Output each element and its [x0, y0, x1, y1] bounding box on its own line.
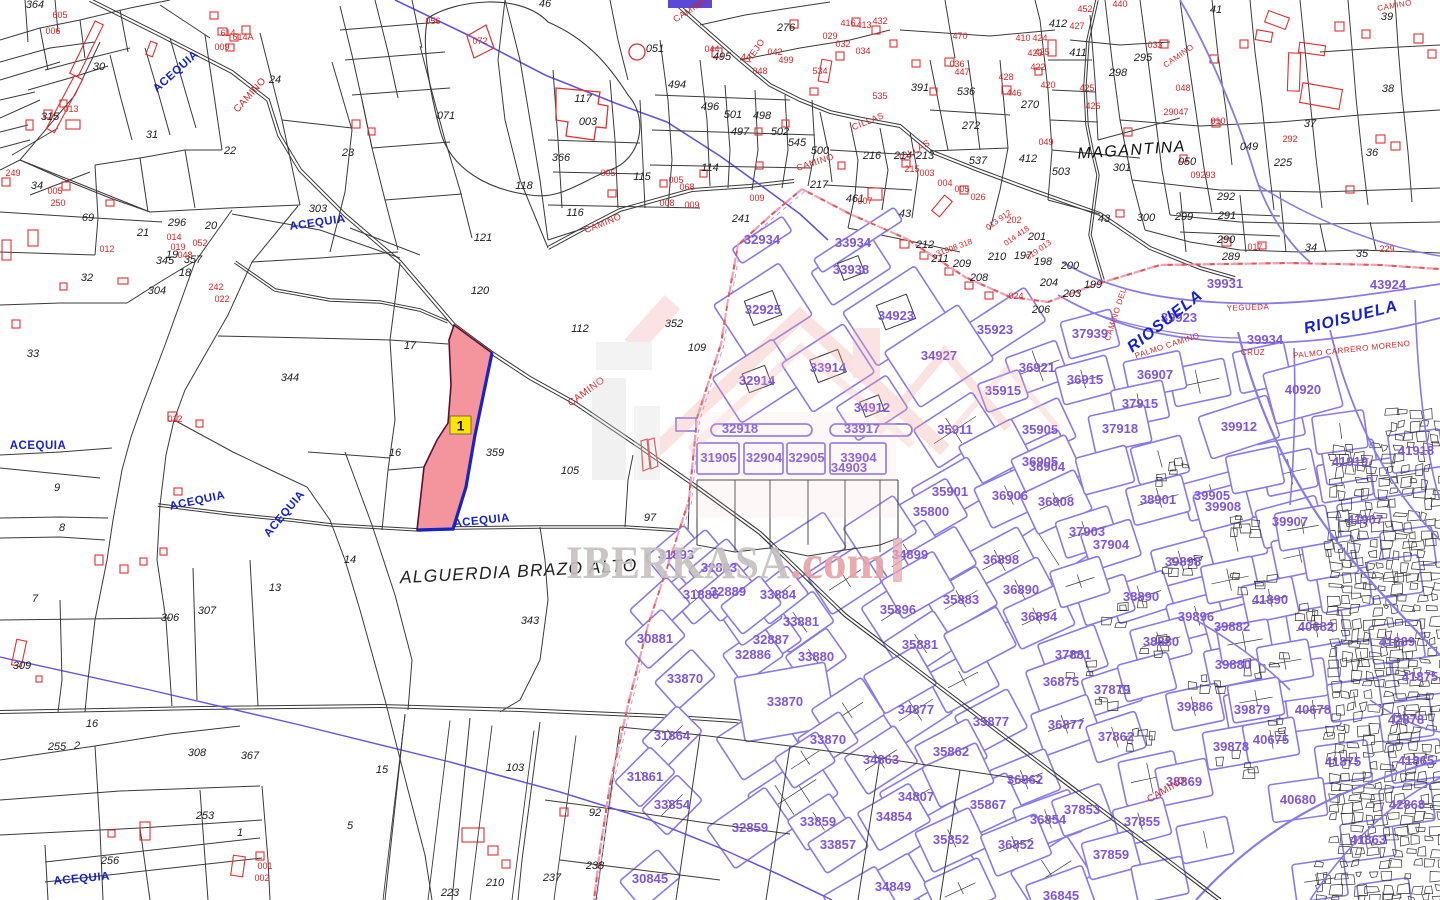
svg-text:315: 315 [41, 111, 60, 123]
svg-text:276: 276 [776, 22, 796, 34]
svg-text:37853: 37853 [1064, 802, 1100, 817]
svg-text:012: 012 [99, 244, 114, 254]
svg-text:432: 432 [872, 16, 887, 26]
svg-text:37859: 37859 [1093, 847, 1129, 862]
svg-text:38901: 38901 [1140, 492, 1176, 507]
svg-text:241: 241 [731, 213, 750, 225]
svg-text:296: 296 [167, 217, 187, 229]
svg-text:056: 056 [425, 16, 440, 26]
svg-text:39908: 39908 [1205, 499, 1241, 514]
svg-text:024: 024 [1008, 291, 1023, 301]
svg-text:014: 014 [166, 232, 181, 242]
svg-text:33857: 33857 [820, 837, 856, 852]
svg-text:09293: 09293 [1190, 170, 1215, 180]
svg-text:17: 17 [404, 340, 417, 352]
svg-text:35862: 35862 [933, 744, 969, 759]
svg-text:200: 200 [1060, 260, 1080, 272]
svg-text:203: 203 [1062, 288, 1082, 300]
svg-text:494: 494 [668, 79, 686, 91]
svg-text:18: 18 [179, 267, 192, 279]
svg-text:497: 497 [731, 126, 750, 138]
svg-text:35923: 35923 [977, 322, 1013, 337]
svg-text:39: 39 [1381, 11, 1393, 23]
svg-text:37881: 37881 [1055, 647, 1091, 662]
svg-text:422: 422 [1030, 62, 1045, 72]
svg-text:39896: 39896 [1178, 609, 1214, 624]
svg-text:502: 502 [771, 126, 789, 138]
svg-text:33: 33 [27, 348, 40, 360]
svg-text:32887: 32887 [753, 632, 789, 647]
svg-text:411: 411 [1069, 47, 1087, 59]
svg-text:39882: 39882 [1214, 619, 1250, 634]
svg-text:295: 295 [1133, 52, 1153, 64]
svg-text:048: 048 [752, 66, 767, 76]
svg-text:13: 13 [269, 582, 282, 594]
svg-text:24: 24 [268, 74, 281, 86]
svg-text:036: 036 [949, 59, 964, 69]
svg-text:42868: 42868 [1389, 797, 1425, 812]
svg-text:253: 253 [195, 810, 215, 822]
svg-text:002: 002 [254, 873, 269, 883]
svg-text:35877: 35877 [973, 714, 1009, 729]
svg-text:41863: 41863 [1350, 832, 1386, 847]
svg-text:501: 501 [724, 109, 742, 121]
svg-text:017: 017 [1247, 242, 1262, 252]
svg-text:299: 299 [1174, 211, 1193, 223]
svg-text:15: 15 [376, 764, 389, 776]
svg-text:605: 605 [52, 10, 67, 20]
svg-text:366: 366 [552, 152, 571, 164]
svg-text:198: 198 [1034, 256, 1053, 268]
svg-text:39931: 39931 [1207, 276, 1243, 291]
svg-text:2: 2 [73, 740, 80, 752]
svg-text:20: 20 [204, 220, 218, 232]
svg-text:29047: 29047 [1163, 107, 1188, 117]
svg-text:41875: 41875 [1402, 669, 1438, 684]
svg-text:225: 225 [1273, 157, 1293, 169]
svg-text:052: 052 [192, 238, 207, 248]
svg-text:026: 026 [970, 192, 985, 202]
svg-text:116: 116 [566, 207, 584, 219]
svg-text:256: 256 [100, 855, 120, 867]
svg-text:35867: 35867 [970, 797, 1006, 812]
svg-text:14: 14 [344, 554, 356, 566]
svg-text:343: 343 [521, 615, 540, 627]
svg-text:303: 303 [309, 203, 328, 215]
svg-text:291: 291 [1217, 210, 1236, 222]
svg-text:39880: 39880 [1215, 657, 1251, 672]
svg-text:536: 536 [957, 86, 976, 98]
svg-text:40678: 40678 [1295, 702, 1331, 717]
svg-text:1: 1 [237, 827, 243, 839]
svg-text:35881: 35881 [902, 637, 938, 652]
svg-text:051: 051 [646, 43, 664, 55]
svg-text:35901: 35901 [932, 484, 968, 499]
svg-text:050: 050 [1178, 156, 1197, 168]
svg-text:16: 16 [389, 447, 402, 459]
svg-text:103: 103 [506, 762, 525, 774]
svg-text:33938: 33938 [833, 262, 869, 277]
svg-text:32859: 32859 [732, 820, 768, 835]
svg-text:114: 114 [701, 162, 719, 174]
svg-text:34923: 34923 [878, 308, 914, 323]
svg-text:CRUZ: CRUZ [1241, 348, 1265, 357]
svg-text:36898: 36898 [983, 552, 1019, 567]
svg-text:072: 072 [472, 36, 487, 46]
svg-text:34849: 34849 [875, 879, 911, 894]
svg-text:34877: 34877 [898, 702, 934, 717]
svg-text:36: 36 [1366, 147, 1379, 159]
svg-text:109: 109 [688, 342, 706, 354]
svg-text:41875: 41875 [1325, 754, 1361, 769]
svg-text:32: 32 [81, 272, 93, 284]
svg-text:270: 270 [1020, 99, 1040, 111]
svg-text:36877: 36877 [1048, 717, 1084, 732]
svg-text:003: 003 [579, 116, 598, 128]
svg-text:33854: 33854 [654, 797, 691, 812]
svg-text:426: 426 [1085, 101, 1100, 111]
svg-text:416: 416 [840, 18, 855, 28]
svg-text:424: 424 [1032, 33, 1047, 43]
svg-text:210: 210 [485, 877, 505, 889]
svg-text:37915: 37915 [1122, 396, 1158, 411]
svg-text:37879: 37879 [1094, 682, 1130, 697]
svg-text:022: 022 [214, 294, 229, 304]
svg-text:545: 545 [788, 137, 807, 149]
svg-text:41907: 41907 [1347, 512, 1383, 527]
svg-text:272: 272 [961, 120, 980, 132]
svg-text:204: 204 [1039, 277, 1058, 289]
svg-text:364: 364 [26, 0, 44, 11]
svg-text:032: 032 [835, 39, 850, 49]
svg-text:37918: 37918 [1102, 421, 1138, 436]
svg-text:IBERKASA: IBERKASA [566, 537, 790, 589]
svg-text:36906: 36906 [992, 488, 1028, 503]
svg-text:292: 292 [1216, 191, 1235, 203]
svg-text:300: 300 [1137, 212, 1156, 224]
svg-text:41890: 41890 [1252, 592, 1288, 607]
svg-text:412: 412 [1019, 153, 1037, 165]
svg-text:33881: 33881 [783, 614, 819, 629]
svg-text:40682: 40682 [1298, 619, 1334, 634]
svg-text:35896: 35896 [880, 602, 916, 617]
svg-text:304: 304 [148, 285, 166, 297]
svg-text:250: 250 [50, 198, 65, 208]
svg-text:496: 496 [701, 101, 720, 113]
svg-text:5: 5 [347, 820, 354, 832]
svg-text:21: 21 [136, 227, 149, 239]
svg-text:005: 005 [954, 184, 969, 194]
svg-text:367: 367 [241, 750, 260, 762]
svg-text:306: 306 [161, 612, 180, 624]
svg-text:425: 425 [1079, 83, 1094, 93]
svg-text:238: 238 [585, 860, 605, 872]
svg-text:212: 212 [915, 239, 934, 251]
svg-text:35852: 35852 [933, 832, 969, 847]
svg-text:206: 206 [1031, 304, 1051, 316]
svg-text:33880: 33880 [798, 649, 834, 664]
svg-text:43924: 43924 [1370, 277, 1407, 292]
svg-text:39898: 39898 [1165, 554, 1201, 569]
svg-text:33934: 33934 [835, 235, 872, 250]
svg-text:41918: 41918 [1398, 443, 1434, 458]
svg-text:034: 034 [855, 46, 870, 56]
svg-text:34807: 34807 [898, 789, 934, 804]
svg-text:503: 503 [1052, 166, 1071, 178]
svg-text:044: 044 [704, 44, 719, 54]
svg-text:37855: 37855 [1124, 814, 1160, 829]
svg-text:41865: 41865 [1398, 753, 1434, 768]
svg-text:308: 308 [188, 747, 207, 759]
svg-text:005: 005 [47, 186, 62, 196]
svg-text:23: 23 [341, 147, 355, 159]
svg-text:428: 428 [998, 72, 1013, 82]
svg-text:049: 049 [1038, 137, 1053, 147]
svg-text:1: 1 [457, 418, 465, 434]
svg-text:048: 048 [1175, 83, 1190, 93]
svg-text:41889: 41889 [1379, 634, 1415, 649]
svg-text:446: 446 [1006, 88, 1021, 98]
svg-text:009: 009 [749, 193, 764, 203]
svg-text:009: 009 [214, 42, 229, 52]
svg-text:36890: 36890 [1003, 582, 1039, 597]
svg-text:31864: 31864 [654, 728, 691, 743]
svg-text:43: 43 [899, 208, 912, 220]
svg-text:004: 004 [937, 178, 952, 188]
svg-text:535: 535 [872, 91, 887, 101]
svg-text:32934: 32934 [744, 232, 781, 247]
svg-text:33870: 33870 [810, 732, 846, 747]
svg-text:37862: 37862 [1098, 729, 1134, 744]
svg-text:216: 216 [862, 150, 882, 162]
svg-text:34: 34 [1305, 242, 1317, 254]
svg-text:012: 012 [167, 414, 182, 424]
svg-text:499: 499 [778, 55, 793, 65]
svg-text:410: 410 [1015, 33, 1030, 43]
svg-text:412: 412 [1049, 18, 1067, 30]
svg-text:001: 001 [257, 861, 272, 871]
svg-text:112: 112 [571, 323, 589, 335]
svg-text:33884: 33884 [760, 587, 797, 602]
svg-text:34: 34 [31, 180, 43, 192]
svg-text:120: 120 [471, 285, 490, 297]
svg-text:289: 289 [1221, 251, 1240, 263]
svg-text:210: 210 [987, 251, 1007, 263]
svg-text:301: 301 [1113, 162, 1131, 174]
svg-text:003: 003 [919, 168, 934, 178]
svg-text:049: 049 [1240, 141, 1258, 153]
svg-text:237: 237 [542, 872, 562, 884]
svg-text:209: 209 [952, 258, 971, 270]
svg-text:40675: 40675 [1253, 732, 1289, 747]
svg-text:7: 7 [32, 593, 39, 605]
svg-text:31: 31 [146, 129, 158, 141]
svg-text:39907: 39907 [1272, 514, 1308, 529]
svg-text:31861: 31861 [627, 769, 663, 784]
svg-text:118: 118 [515, 180, 533, 192]
svg-text:39912: 39912 [1221, 419, 1257, 434]
svg-text:006: 006 [45, 26, 60, 36]
svg-text:117: 117 [574, 93, 592, 105]
svg-text:43: 43 [1098, 213, 1111, 225]
svg-text:32886: 32886 [735, 647, 771, 662]
svg-text:38: 38 [1382, 83, 1395, 95]
svg-text:69: 69 [82, 212, 94, 224]
svg-text:009: 009 [684, 200, 699, 210]
svg-text:38890: 38890 [1123, 589, 1159, 604]
svg-text:420: 420 [1040, 80, 1055, 90]
svg-text:39879: 39879 [1234, 702, 1270, 717]
svg-text:208: 208 [969, 272, 989, 284]
svg-text:9: 9 [54, 482, 60, 494]
svg-text:30845: 30845 [632, 871, 668, 886]
svg-text:440: 440 [1112, 0, 1127, 9]
svg-text:8: 8 [59, 522, 66, 534]
svg-text:.com: .com [790, 537, 886, 589]
svg-text:36875: 36875 [1043, 674, 1079, 689]
svg-text:33870: 33870 [767, 694, 803, 709]
svg-text:37904: 37904 [1093, 537, 1130, 552]
svg-text:121: 121 [474, 232, 492, 244]
svg-text:36908: 36908 [1038, 494, 1074, 509]
svg-text:452: 452 [1077, 4, 1092, 14]
svg-text:391: 391 [911, 82, 929, 94]
svg-text:498: 498 [753, 110, 772, 122]
svg-text:292: 292 [1282, 134, 1297, 144]
svg-text:46: 46 [539, 0, 552, 10]
svg-text:537: 537 [969, 155, 988, 167]
svg-text:22: 22 [223, 145, 236, 157]
svg-text:38880: 38880 [1143, 634, 1179, 649]
svg-text:413: 413 [856, 20, 871, 30]
svg-text:215: 215 [904, 164, 919, 174]
svg-text:39934: 39934 [1247, 332, 1284, 347]
svg-text:ACEQUIA: ACEQUIA [10, 440, 67, 452]
svg-text:534: 534 [812, 66, 827, 76]
svg-text:39878: 39878 [1213, 739, 1249, 754]
svg-text:423: 423 [1027, 48, 1042, 58]
svg-text:36915: 36915 [1067, 372, 1103, 387]
svg-text:41: 41 [1210, 4, 1222, 16]
svg-text:013: 013 [63, 104, 78, 114]
svg-text:344: 344 [281, 372, 299, 384]
svg-text:36854: 36854 [1030, 812, 1067, 827]
svg-text:34854: 34854 [876, 809, 913, 824]
svg-text:010: 010 [1210, 116, 1225, 126]
svg-text:36894: 36894 [1021, 609, 1058, 624]
svg-text:36862: 36862 [1007, 772, 1043, 787]
svg-text:34863: 34863 [863, 752, 899, 767]
svg-text:199: 199 [1084, 279, 1102, 291]
svg-text:30: 30 [93, 61, 106, 73]
svg-text:16: 16 [86, 718, 99, 730]
svg-text:307: 307 [198, 605, 217, 617]
svg-text:35800: 35800 [913, 504, 949, 519]
svg-text:427: 427 [1069, 21, 1084, 31]
svg-text:36845: 36845 [1043, 888, 1079, 900]
svg-text:40680: 40680 [1280, 792, 1316, 807]
svg-text:359: 359 [486, 447, 504, 459]
svg-text:068: 068 [679, 182, 694, 192]
svg-text:97: 97 [644, 512, 657, 524]
svg-text:033: 033 [1147, 40, 1162, 50]
svg-text:35: 35 [1356, 248, 1369, 260]
svg-text:290: 290 [1216, 234, 1236, 246]
svg-text:019: 019 [170, 242, 185, 252]
svg-text:32925: 32925 [745, 302, 781, 317]
svg-text:255: 255 [47, 741, 67, 753]
svg-text:007: 007 [857, 196, 872, 206]
svg-text:470: 470 [952, 31, 967, 41]
svg-text:249: 249 [5, 168, 20, 178]
svg-text:309: 309 [13, 660, 31, 672]
svg-text:36904: 36904 [1029, 459, 1066, 474]
svg-text:42878: 42878 [1388, 712, 1424, 727]
svg-text:33859: 33859 [800, 814, 836, 829]
svg-text:37: 37 [1304, 118, 1317, 130]
svg-text:41919: 41919 [1332, 454, 1368, 469]
svg-text:105: 105 [561, 465, 580, 477]
svg-text:115: 115 [633, 171, 651, 183]
svg-text:39886: 39886 [1177, 699, 1213, 714]
svg-text:614A: 614A [232, 32, 253, 42]
svg-text:35883: 35883 [943, 592, 979, 607]
svg-text:242: 242 [208, 282, 223, 292]
svg-text:36907: 36907 [1137, 367, 1173, 382]
svg-text:008: 008 [659, 198, 674, 208]
svg-text:40920: 40920 [1285, 382, 1321, 397]
svg-text:071: 071 [437, 110, 455, 122]
svg-text:36921: 36921 [1019, 360, 1055, 375]
svg-text:30881: 30881 [637, 631, 673, 646]
svg-text:229: 229 [1379, 244, 1394, 254]
svg-text:36852: 36852 [998, 837, 1034, 852]
svg-text:33870: 33870 [667, 671, 703, 686]
svg-text:YEGUEDA: YEGUEDA [1226, 302, 1269, 312]
svg-text:298: 298 [1108, 67, 1128, 79]
svg-text:92: 92 [589, 807, 601, 819]
svg-text:005: 005 [600, 168, 615, 178]
svg-text:217: 217 [809, 179, 829, 191]
svg-text:223: 223 [440, 887, 460, 899]
